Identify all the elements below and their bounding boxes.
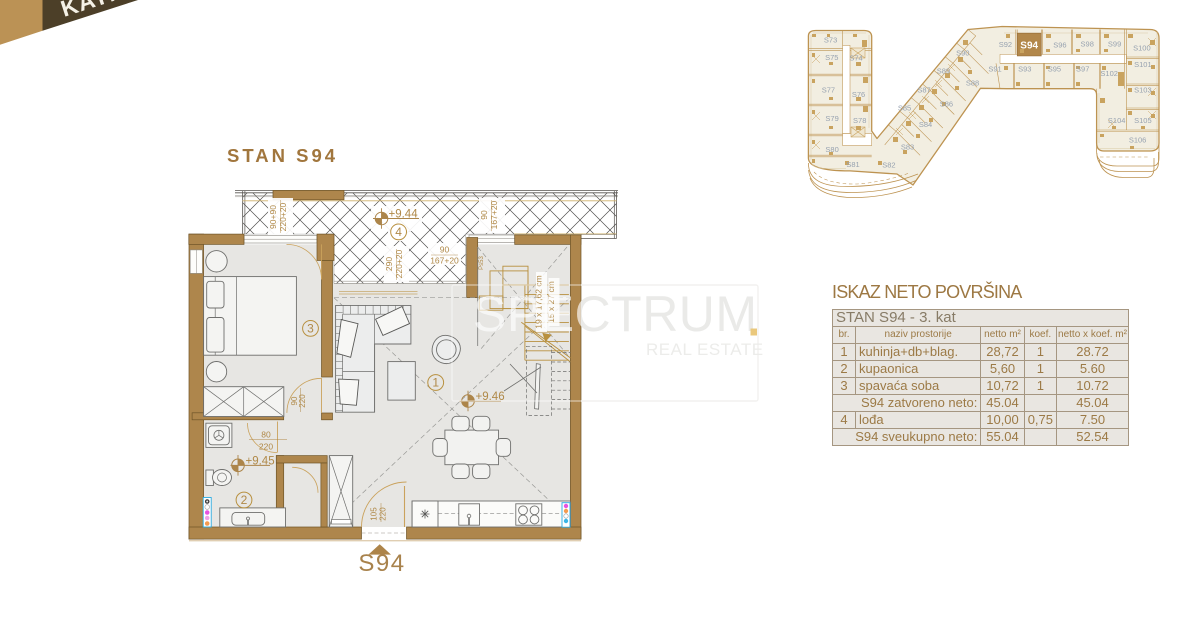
svg-text:220+20: 220+20 <box>278 202 288 231</box>
svg-text:220: 220 <box>298 394 307 408</box>
svg-text:S77: S77 <box>822 86 835 95</box>
svg-text:167+20: 167+20 <box>489 200 499 229</box>
svg-text:S96: S96 <box>1053 41 1066 50</box>
svg-text:+9.44: +9.44 <box>389 209 419 221</box>
svg-text:1: 1 <box>432 376 439 390</box>
svg-text:S106: S106 <box>1129 136 1147 145</box>
svg-text:2: 2 <box>241 493 248 507</box>
svg-text:4: 4 <box>395 225 402 239</box>
svg-text:80: 80 <box>261 430 271 440</box>
svg-text:S74: S74 <box>849 54 862 63</box>
svg-text:S87: S87 <box>917 86 930 95</box>
svg-text:220: 220 <box>259 442 273 452</box>
svg-text:S73: S73 <box>824 36 837 45</box>
svg-text:S80: S80 <box>825 145 838 154</box>
svg-text:S79: S79 <box>825 114 838 123</box>
svg-text:S100: S100 <box>1133 44 1151 53</box>
svg-text:REAL ESTATE: REAL ESTATE <box>646 340 764 359</box>
svg-text:220: 220 <box>379 507 388 521</box>
svg-text:STAN S94: STAN S94 <box>227 145 338 166</box>
svg-text:3: 3 <box>307 322 314 336</box>
svg-text:S86: S86 <box>940 100 953 109</box>
svg-text:S89: S89 <box>937 67 950 76</box>
svg-text:S93: S93 <box>1018 65 1031 74</box>
svg-text:S88: S88 <box>966 79 979 88</box>
svg-text:S95: S95 <box>1048 65 1061 74</box>
svg-text:S98: S98 <box>1081 40 1094 49</box>
svg-text:S102: S102 <box>1100 69 1118 78</box>
svg-text:S91: S91 <box>988 65 1001 74</box>
svg-text:S99: S99 <box>1108 40 1121 49</box>
svg-text:Ps53: Ps53 <box>479 256 485 270</box>
svg-text:290: 290 <box>384 257 394 271</box>
svg-text:S85: S85 <box>898 104 911 113</box>
svg-text:167+20: 167+20 <box>430 256 459 266</box>
svg-text:S94: S94 <box>358 550 405 577</box>
svg-text:S78: S78 <box>853 116 866 125</box>
svg-text:S103: S103 <box>1134 86 1152 95</box>
svg-text:S104: S104 <box>1108 116 1126 125</box>
svg-text:220+20: 220+20 <box>394 249 404 278</box>
svg-text:+9.45: +9.45 <box>246 455 275 467</box>
svg-text:S92: S92 <box>999 40 1012 49</box>
svg-text:90: 90 <box>479 210 489 220</box>
svg-text:90+90: 90+90 <box>268 205 278 229</box>
svg-text:S81: S81 <box>846 160 859 169</box>
svg-text:S76: S76 <box>852 90 865 99</box>
svg-text:S75: S75 <box>825 53 838 62</box>
svg-text:S90: S90 <box>956 49 969 58</box>
svg-text:90: 90 <box>440 245 450 255</box>
svg-text:S82: S82 <box>882 161 895 170</box>
svg-text:S97: S97 <box>1076 65 1089 74</box>
svg-text:S84: S84 <box>919 120 932 129</box>
svg-text:S105: S105 <box>1134 116 1152 125</box>
svg-text:S101: S101 <box>1134 60 1152 69</box>
svg-text:S83: S83 <box>901 143 914 152</box>
svg-text:105: 105 <box>370 507 379 521</box>
